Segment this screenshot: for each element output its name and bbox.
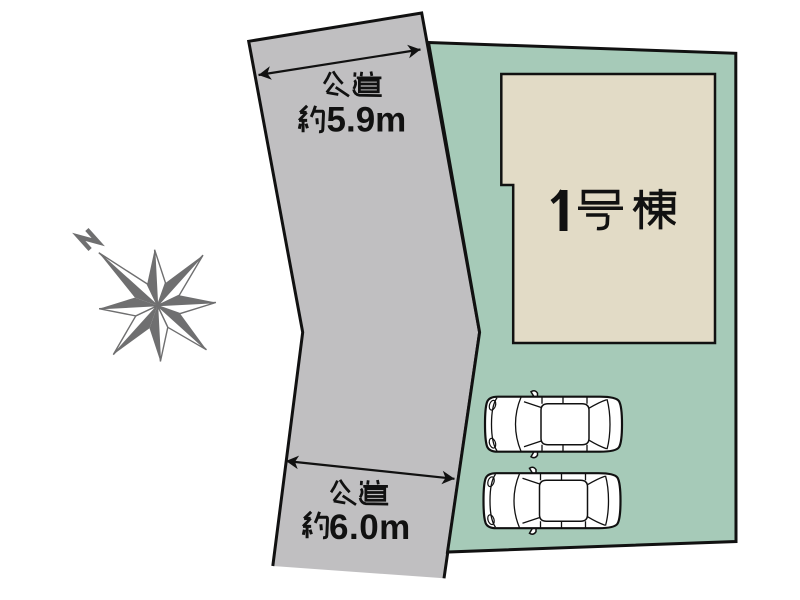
svg-text:5.9m: 5.9m: [327, 101, 407, 140]
svg-text:6.0m: 6.0m: [329, 508, 411, 547]
